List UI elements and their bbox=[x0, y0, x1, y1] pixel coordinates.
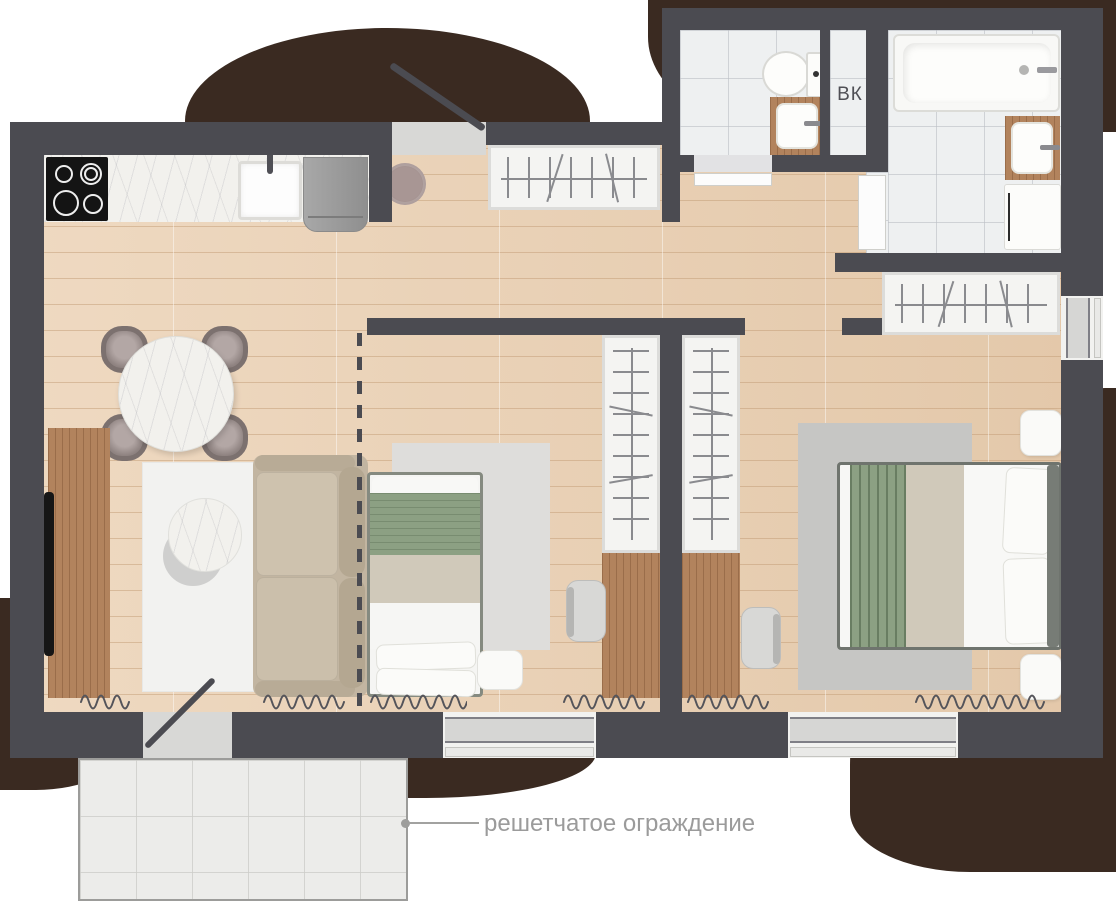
chair-back bbox=[567, 587, 574, 637]
dishwasher-seam bbox=[308, 216, 363, 218]
washing-machine-door-seam bbox=[1008, 193, 1010, 241]
wall-wc-bottom-b bbox=[772, 155, 866, 172]
radiator bbox=[370, 694, 467, 710]
wall-bottom-a bbox=[10, 712, 143, 758]
closet-hangers bbox=[507, 157, 641, 198]
fence-label: решетчатое ограждение bbox=[484, 810, 755, 838]
wall-bedroom-door-stub bbox=[842, 318, 882, 335]
wall-bottom-b bbox=[232, 712, 443, 758]
wall-right-lower bbox=[1061, 360, 1103, 758]
coffee-table bbox=[168, 498, 242, 572]
kids-bed-green-blanket bbox=[370, 493, 480, 555]
closet-hangers bbox=[693, 350, 729, 538]
kids-wardrobe bbox=[602, 335, 660, 553]
window-sill bbox=[445, 747, 594, 757]
wall-entrance-pillar bbox=[369, 122, 392, 222]
wall-bath-left bbox=[662, 8, 680, 222]
shaft-label: ВК bbox=[828, 84, 872, 106]
bedroom-desk-chair bbox=[741, 607, 781, 669]
bed-headboard bbox=[1047, 465, 1059, 647]
hall-closet bbox=[488, 145, 660, 210]
radiator bbox=[263, 694, 353, 710]
wall-middle bbox=[660, 335, 682, 758]
kids-bed-pillow bbox=[376, 668, 477, 698]
bathtub bbox=[893, 34, 1060, 112]
dashed-partition bbox=[357, 333, 362, 709]
radiator bbox=[687, 694, 783, 710]
window-glass bbox=[445, 717, 594, 743]
wall-bottom-c bbox=[596, 712, 788, 758]
bedroom-top-closet bbox=[882, 272, 1060, 335]
radiator bbox=[915, 694, 1058, 710]
kids-desk-chair bbox=[566, 580, 606, 642]
bathroom-door-leaf bbox=[858, 175, 886, 250]
wall-bath-bottom bbox=[835, 253, 1063, 272]
window-glass bbox=[1066, 298, 1090, 358]
tv bbox=[44, 492, 54, 656]
bed-beige-duvet bbox=[906, 465, 964, 647]
bathtub-inner bbox=[903, 43, 1051, 103]
window-right-wall bbox=[1061, 296, 1103, 360]
bathtub-drain bbox=[1019, 65, 1029, 75]
burner bbox=[83, 194, 103, 214]
kids-bed-beige-blanket bbox=[370, 555, 480, 603]
wc-door-threshold bbox=[694, 155, 772, 172]
wall-right-upper bbox=[1061, 8, 1103, 296]
window-sill bbox=[790, 747, 956, 757]
wall-hall-cap bbox=[486, 122, 665, 145]
toilet-bowl bbox=[762, 51, 810, 97]
dishwasher bbox=[303, 157, 368, 232]
burner bbox=[84, 167, 98, 181]
burner bbox=[55, 165, 73, 183]
wc-sink-basin bbox=[776, 103, 818, 149]
tv-console bbox=[48, 428, 110, 698]
bath-faucet bbox=[1040, 145, 1060, 150]
chair-back bbox=[773, 614, 780, 664]
sofa bbox=[253, 455, 368, 697]
bedroom-desk bbox=[682, 553, 740, 698]
window-sill bbox=[1094, 298, 1101, 358]
kids-stool bbox=[477, 650, 523, 690]
kids-bed bbox=[367, 472, 483, 697]
entrance-threshold bbox=[392, 122, 486, 155]
wall-top-kitchen bbox=[10, 122, 369, 155]
kids-desk bbox=[602, 553, 660, 698]
radiator bbox=[80, 694, 135, 710]
bed-green-throw bbox=[850, 465, 906, 647]
burner bbox=[53, 190, 79, 216]
dining-table bbox=[118, 336, 234, 452]
balcony-fence bbox=[78, 758, 408, 901]
radiator bbox=[563, 694, 658, 710]
wall-kids-top bbox=[367, 318, 745, 335]
sofa-seat-cushion bbox=[256, 577, 338, 681]
washing-machine bbox=[1004, 184, 1061, 250]
wall-bottom-d bbox=[958, 712, 1103, 758]
bed-pillow bbox=[1003, 557, 1054, 645]
toilet-flush-button bbox=[813, 71, 819, 77]
wall-wc-bottom-a bbox=[680, 155, 694, 172]
kitchen-stove bbox=[46, 157, 108, 221]
window-bedroom bbox=[788, 712, 958, 758]
wall-left bbox=[10, 122, 44, 758]
floor-plan: ВК решетчатое ограждение bbox=[0, 0, 1116, 901]
closet-hangers bbox=[613, 350, 649, 538]
fence-leader-line bbox=[409, 822, 479, 824]
sofa-armrest bbox=[255, 455, 355, 471]
bedroom-wardrobe bbox=[682, 335, 740, 553]
window-kids-room bbox=[443, 712, 596, 758]
double-bed bbox=[837, 462, 1062, 650]
wc-door-leaf bbox=[694, 173, 772, 186]
sofa-seat-cushion bbox=[256, 472, 338, 576]
window-glass bbox=[790, 717, 956, 743]
closet-hangers bbox=[901, 284, 1041, 323]
bathtub-faucet bbox=[1037, 67, 1057, 73]
nightstand bbox=[1020, 410, 1062, 456]
